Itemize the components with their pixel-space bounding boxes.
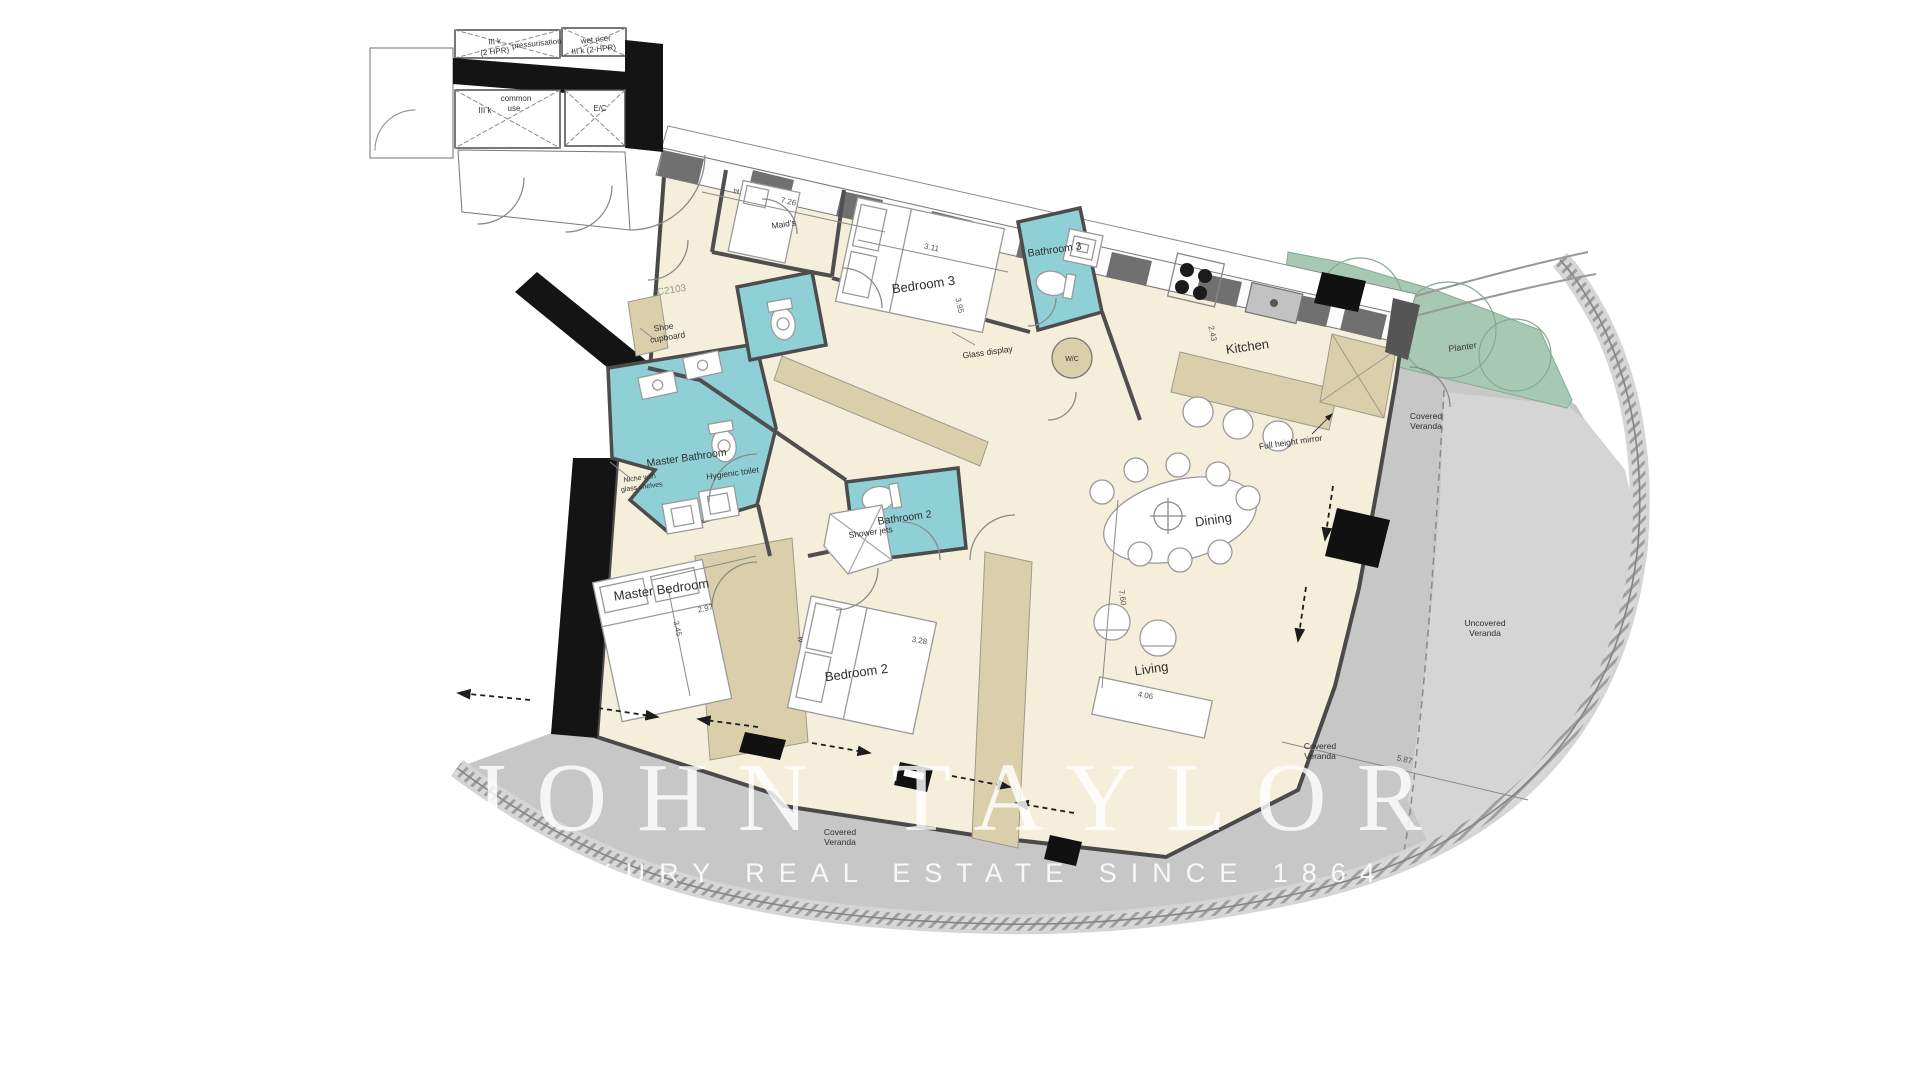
floorplan-drawing: III k (2 HPR) pressurisation wet riser I…: [0, 0, 1920, 1079]
outdoor-label-covered-bottom-line1: Covered: [824, 827, 856, 837]
core-label-shaft1-line1: III k: [488, 36, 503, 46]
core-label-shaft2: III k: [479, 106, 493, 115]
stool: [1223, 409, 1253, 439]
outdoor-label-covered-top-line2: Veranda: [1410, 421, 1442, 431]
building-core: [370, 28, 663, 232]
core-label-ec: E/C: [593, 104, 607, 113]
outdoor-label-covered-bottom-line2: Veranda: [824, 837, 856, 847]
outdoor-label-covered-right-line1: Covered: [1304, 741, 1336, 751]
floorplan-page: III k (2 HPR) pressurisation wet riser I…: [0, 0, 1920, 1079]
stool: [1183, 397, 1213, 427]
outdoor-label-covered-top-line1: Covered: [1410, 411, 1442, 421]
outdoor-label-uncovered-line1: Uncovered: [1464, 618, 1505, 628]
outdoor-label-covered-right-line2: Veranda: [1304, 751, 1336, 761]
core-label-common-line1: common: [501, 94, 532, 103]
outdoor-label-uncovered-line2: Veranda: [1469, 628, 1501, 638]
hob-icon: [1180, 263, 1194, 277]
core-label-common-line2: use: [508, 104, 521, 113]
room-label-wc: W/C: [1065, 356, 1079, 363]
